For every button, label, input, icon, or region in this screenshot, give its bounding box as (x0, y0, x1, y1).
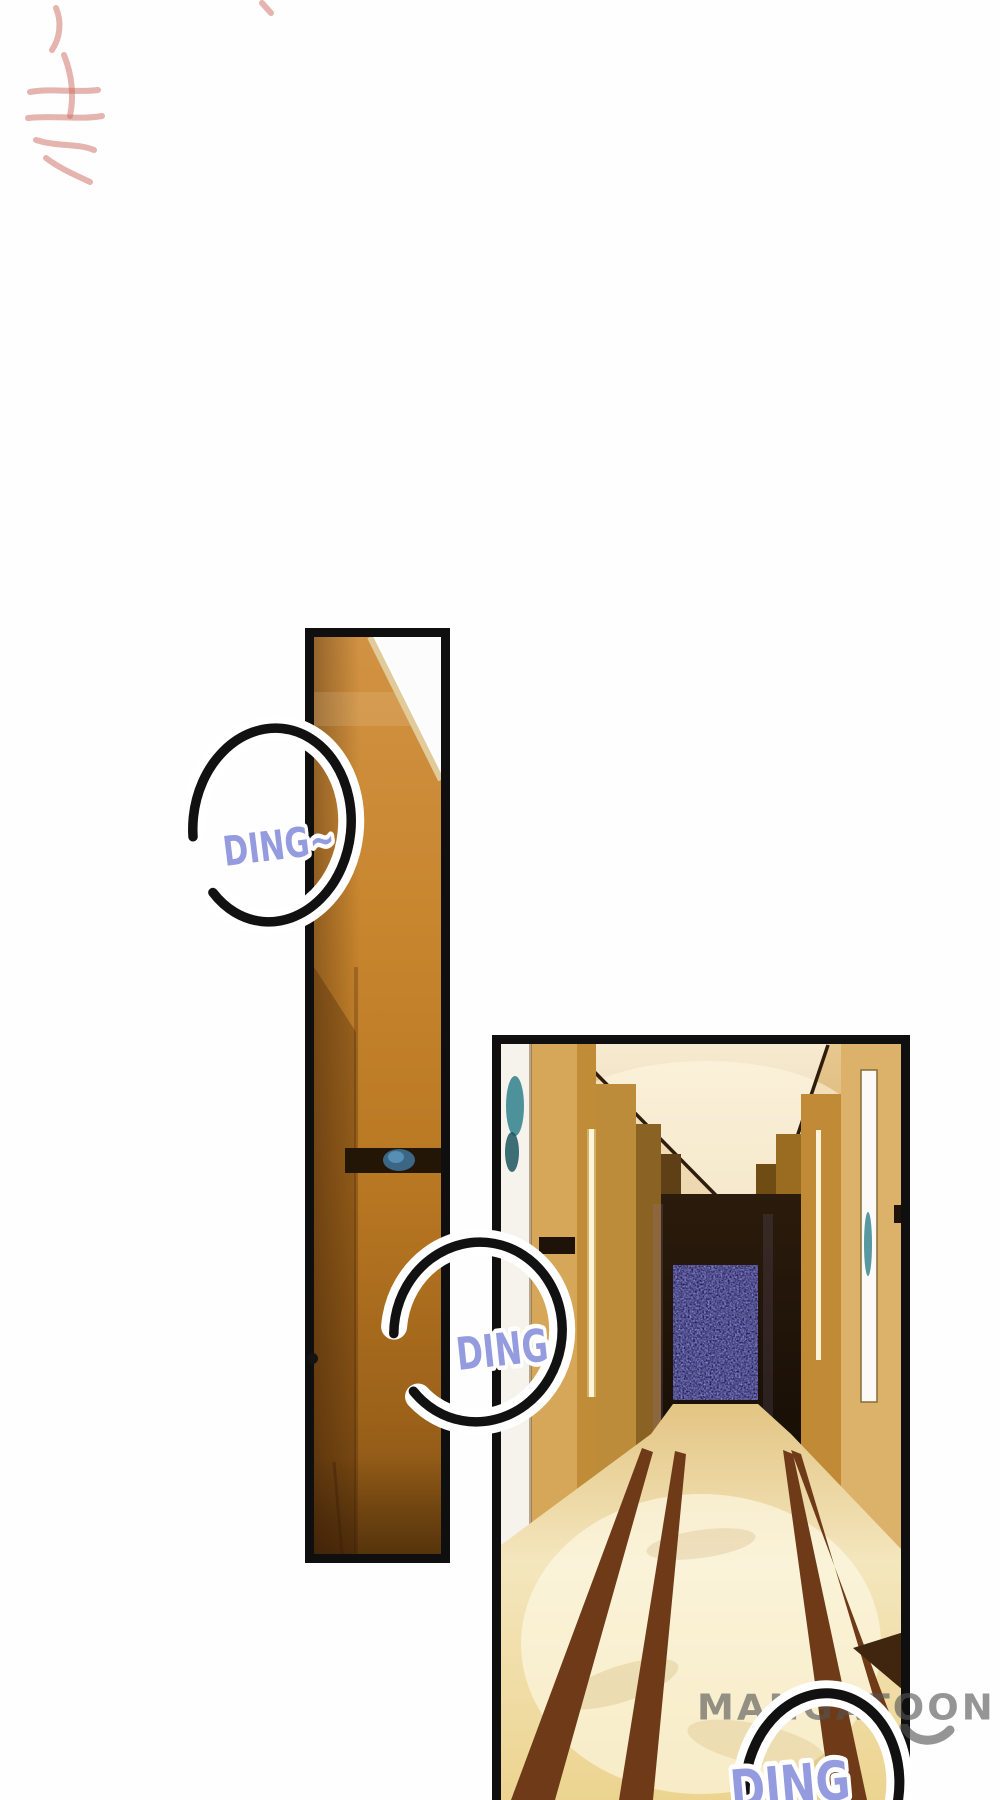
red-scribble-marks (0, 0, 320, 200)
scribble-stroke (46, 158, 90, 182)
scribble-stroke (36, 140, 94, 150)
scribble-stroke (30, 90, 98, 92)
floor-shadow (314, 1457, 441, 1554)
comic-page: MANGATOON DING~ DING DING (0, 0, 1000, 1800)
blue-reflection-core (388, 1151, 404, 1163)
watermark-text: MANGATOON (697, 1690, 996, 1725)
ink-dot (307, 1353, 318, 1364)
scribble-stroke (28, 116, 102, 118)
sparkle-noise (673, 1265, 758, 1400)
led-glow-left (587, 1129, 596, 1397)
door-sign-slot-left (539, 1237, 575, 1254)
panel-corridor (492, 1035, 910, 1800)
teal-artwork-right (864, 1212, 872, 1276)
teal-artwork-left-2 (505, 1132, 519, 1172)
led-strip-right (816, 1130, 821, 1360)
scribble-stroke (262, 3, 271, 13)
scribble-stroke (52, 8, 59, 50)
watermark-smile-icon (898, 1724, 958, 1752)
scribble-stroke (64, 55, 72, 116)
elevator-wall-art (314, 637, 441, 1554)
panel-elevator-wall (305, 628, 450, 1563)
lit-strip-edge (529, 1044, 532, 1545)
door-sign-slot-right (894, 1205, 901, 1223)
teal-artwork-left (506, 1076, 524, 1136)
